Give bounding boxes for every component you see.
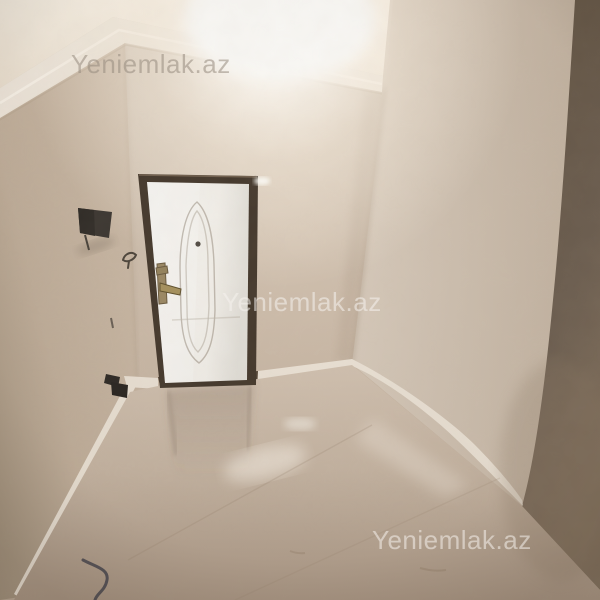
room-scene: [0, 0, 600, 600]
vignette: [0, 0, 600, 600]
listing-photo: Yeniemlak.az Yeniemlak.az Yeniemlak.az: [0, 0, 600, 600]
